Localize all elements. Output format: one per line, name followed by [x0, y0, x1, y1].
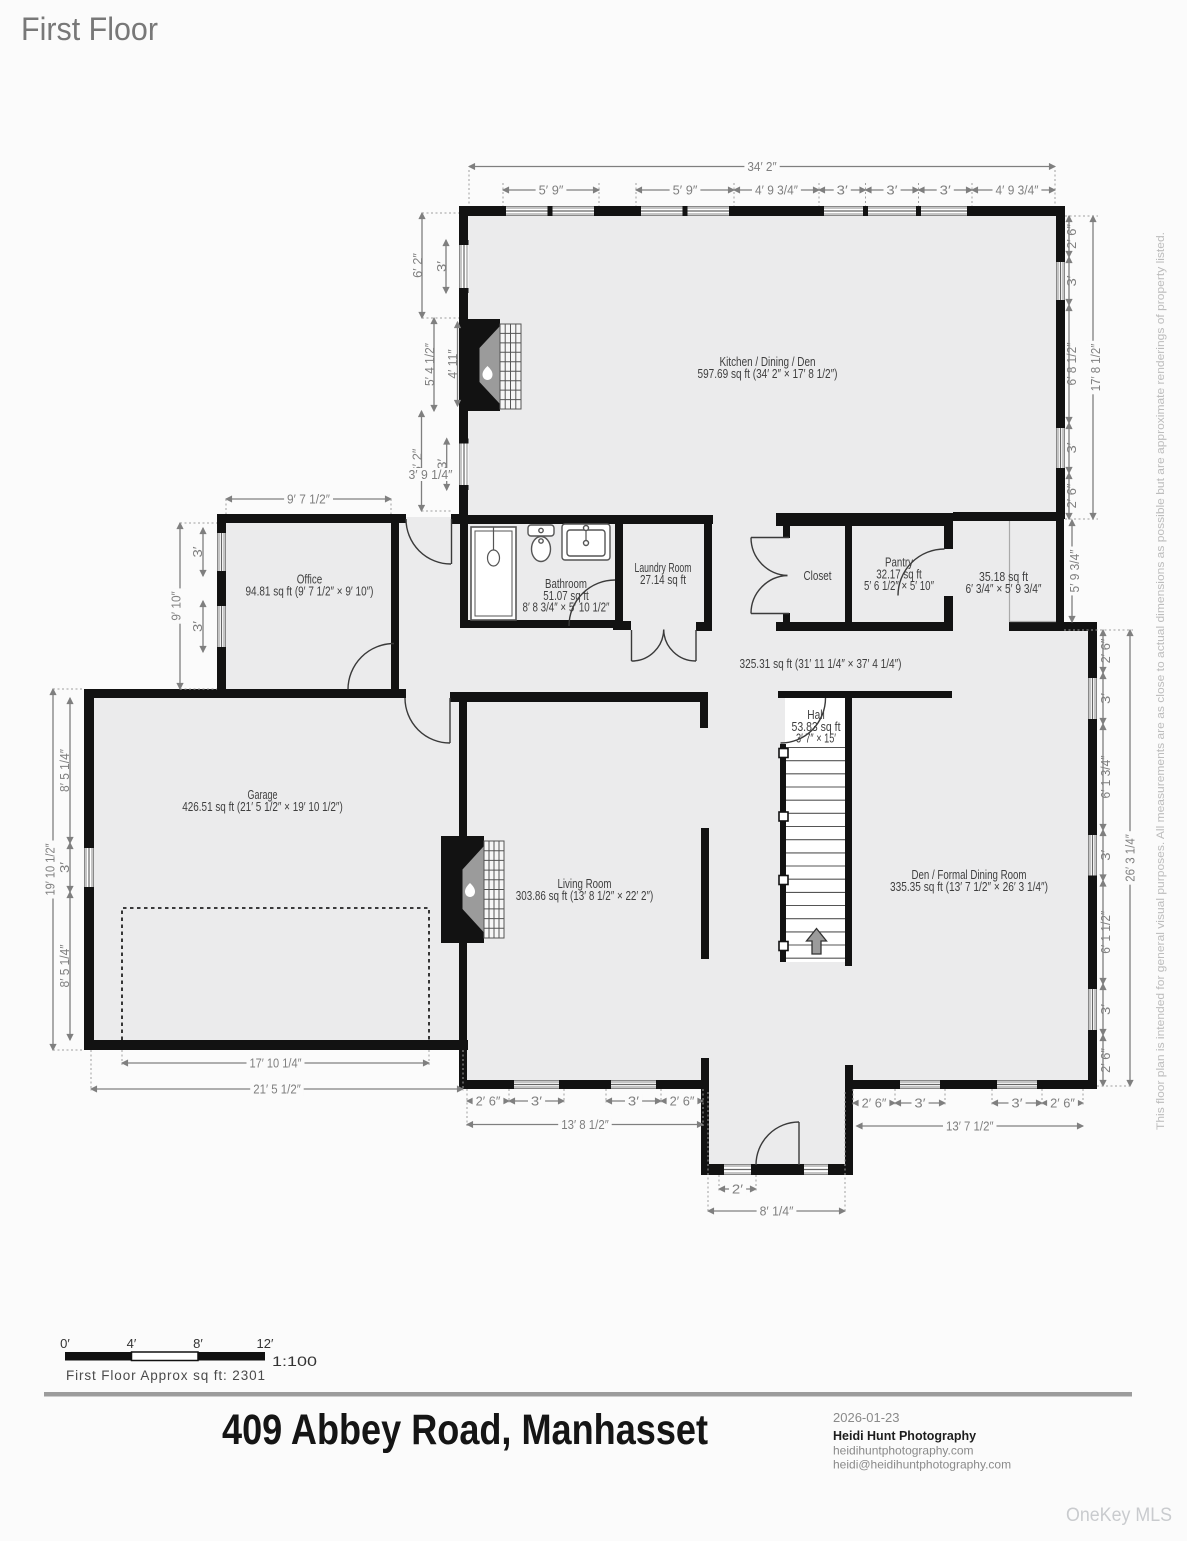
- svg-text:Closet: Closet: [804, 568, 832, 583]
- svg-text:8′ 1/4″: 8′ 1/4″: [760, 1204, 794, 1219]
- svg-text:13′ 7 1/2″: 13′ 7 1/2″: [946, 1119, 994, 1134]
- svg-text:17′ 10 1/4″: 17′ 10 1/4″: [250, 1056, 302, 1071]
- svg-text:8′ 5 1/4″: 8′ 5 1/4″: [57, 749, 72, 792]
- svg-text:2′ 6″: 2′ 6″: [1098, 1048, 1113, 1073]
- svg-text:3′: 3′: [1064, 442, 1079, 454]
- svg-text:3′: 3′: [837, 183, 849, 198]
- svg-text:34′ 2″: 34′ 2″: [747, 159, 777, 174]
- svg-text:2′ 6″: 2′ 6″: [1098, 638, 1113, 663]
- svg-text:19′ 10 1/2″: 19′ 10 1/2″: [43, 843, 58, 895]
- svg-text:9′ 10″: 9′ 10″: [169, 591, 184, 621]
- svg-text:3′: 3′: [1011, 1096, 1023, 1111]
- svg-text:First Floor: First Floor: [21, 11, 158, 47]
- svg-text:OneKey MLS: OneKey MLS: [1066, 1504, 1172, 1526]
- svg-text:17′ 8 1/2″: 17′ 8 1/2″: [1088, 343, 1103, 391]
- svg-text:2′ 6″: 2′ 6″: [670, 1094, 695, 1109]
- svg-text:335.35 sq ft (13′ 7 1/2″ × 26′: 335.35 sq ft (13′ 7 1/2″ × 26′ 3 1/4″): [890, 879, 1048, 894]
- svg-text:5′ 9″: 5′ 9″: [673, 183, 698, 198]
- svg-text:3′: 3′: [1098, 692, 1113, 704]
- svg-text:heidi@heidihuntphotography.com: heidi@heidihuntphotography.com: [833, 1458, 1011, 1472]
- svg-text:3′: 3′: [628, 1094, 640, 1109]
- svg-text:First Floor Approx sq ft: 2301: First Floor Approx sq ft: 2301: [66, 1368, 265, 1383]
- svg-text:13′ 8 1/2″: 13′ 8 1/2″: [561, 1117, 609, 1132]
- svg-text:3′: 3′: [190, 546, 205, 558]
- svg-text:6′ 1 1/2″: 6′ 1 1/2″: [1098, 910, 1113, 953]
- svg-text:26′ 3 1/4″: 26′ 3 1/4″: [1123, 834, 1138, 882]
- svg-text:3′: 3′: [1098, 849, 1113, 861]
- svg-text:8′ 5 1/4″: 8′ 5 1/4″: [57, 944, 72, 987]
- svg-text:27.14 sq ft: 27.14 sq ft: [640, 572, 686, 587]
- svg-text:5′ 9 3/4″: 5′ 9 3/4″: [1067, 549, 1082, 592]
- svg-text:4′ 11″: 4′ 11″: [445, 349, 460, 379]
- svg-text:12′: 12′: [257, 1336, 274, 1351]
- svg-text:2′ 6″: 2′ 6″: [1064, 483, 1079, 508]
- svg-text:4′ 9 3/4″: 4′ 9 3/4″: [996, 183, 1039, 198]
- svg-text:2′ 6″: 2′ 6″: [862, 1096, 887, 1111]
- svg-text:This floor plan is intended fo: This floor plan is intended for general …: [1155, 232, 1167, 1130]
- svg-text:6′ 8 1/2″: 6′ 8 1/2″: [1064, 342, 1079, 385]
- svg-text:409 Abbey Road, Manhasset: 409 Abbey Road, Manhasset: [222, 1406, 708, 1454]
- svg-text:3′ 7″ × 15′: 3′ 7″ × 15′: [796, 731, 836, 746]
- svg-text:5′ 6 1/2″ × 5′ 10″: 5′ 6 1/2″ × 5′ 10″: [864, 578, 934, 593]
- svg-text:2026-01-23: 2026-01-23: [833, 1410, 900, 1425]
- svg-text:6′ 3/4″ × 5′ 9 3/4″: 6′ 3/4″ × 5′ 9 3/4″: [966, 581, 1042, 596]
- svg-text:3′: 3′: [940, 183, 952, 198]
- svg-text:8′: 8′: [193, 1336, 203, 1351]
- svg-text:3′: 3′: [531, 1094, 543, 1109]
- svg-text:3′: 3′: [57, 861, 72, 873]
- svg-text:3′ 9 1/4″: 3′ 9 1/4″: [409, 467, 453, 482]
- svg-text:0′: 0′: [60, 1336, 70, 1351]
- svg-text:2′: 2′: [732, 1182, 744, 1197]
- svg-text:3′: 3′: [914, 1096, 926, 1111]
- svg-text:3′: 3′: [1098, 1003, 1113, 1015]
- svg-text:325.31 sq ft (31′ 11 1/4″ × 37: 325.31 sq ft (31′ 11 1/4″ × 37′ 4 1/4″): [740, 656, 902, 671]
- svg-text:3′: 3′: [1064, 275, 1079, 287]
- svg-text:heidihuntphotography.com: heidihuntphotography.com: [833, 1444, 974, 1458]
- svg-text:Heidi Hunt Photography: Heidi Hunt Photography: [833, 1429, 976, 1443]
- svg-text:303.86 sq ft (13′ 8 1/2″ × 22′: 303.86 sq ft (13′ 8 1/2″ × 22′ 2″): [516, 888, 654, 903]
- svg-text:3′: 3′: [190, 620, 205, 632]
- svg-text:8′ 8 3/4″ × 5′ 10 1/2″: 8′ 8 3/4″ × 5′ 10 1/2″: [523, 600, 610, 615]
- svg-text:3′: 3′: [886, 183, 898, 198]
- svg-text:4′: 4′: [127, 1336, 137, 1351]
- svg-text:3′: 3′: [434, 260, 449, 272]
- svg-text:4′ 9 3/4″: 4′ 9 3/4″: [755, 183, 798, 198]
- svg-text:94.81 sq ft (9′ 7 1/2″ × 9′ 10: 94.81 sq ft (9′ 7 1/2″ × 9′ 10″): [246, 583, 374, 598]
- svg-text:9′ 7 1/2″: 9′ 7 1/2″: [287, 492, 330, 507]
- svg-text:6′ 2″: 6′ 2″: [410, 253, 425, 278]
- svg-text:2′ 6″: 2′ 6″: [1064, 224, 1079, 249]
- svg-text:5′ 9″: 5′ 9″: [539, 183, 564, 198]
- svg-text:5′ 4 1/2″: 5′ 4 1/2″: [422, 343, 437, 386]
- svg-text:6′ 1 3/4″: 6′ 1 3/4″: [1098, 755, 1113, 798]
- svg-text:597.69 sq ft (34′ 2″ × 17′ 8 1: 597.69 sq ft (34′ 2″ × 17′ 8 1/2″): [698, 366, 838, 381]
- svg-text:2′ 6″: 2′ 6″: [1050, 1096, 1075, 1111]
- svg-text:1:100: 1:100: [272, 1354, 317, 1369]
- svg-text:2′ 6″: 2′ 6″: [476, 1094, 501, 1109]
- svg-text:426.51 sq ft (21′ 5 1/2″ × 19′: 426.51 sq ft (21′ 5 1/2″ × 19′ 10 1/2″): [182, 799, 343, 814]
- svg-text:21′ 5 1/2″: 21′ 5 1/2″: [253, 1082, 301, 1097]
